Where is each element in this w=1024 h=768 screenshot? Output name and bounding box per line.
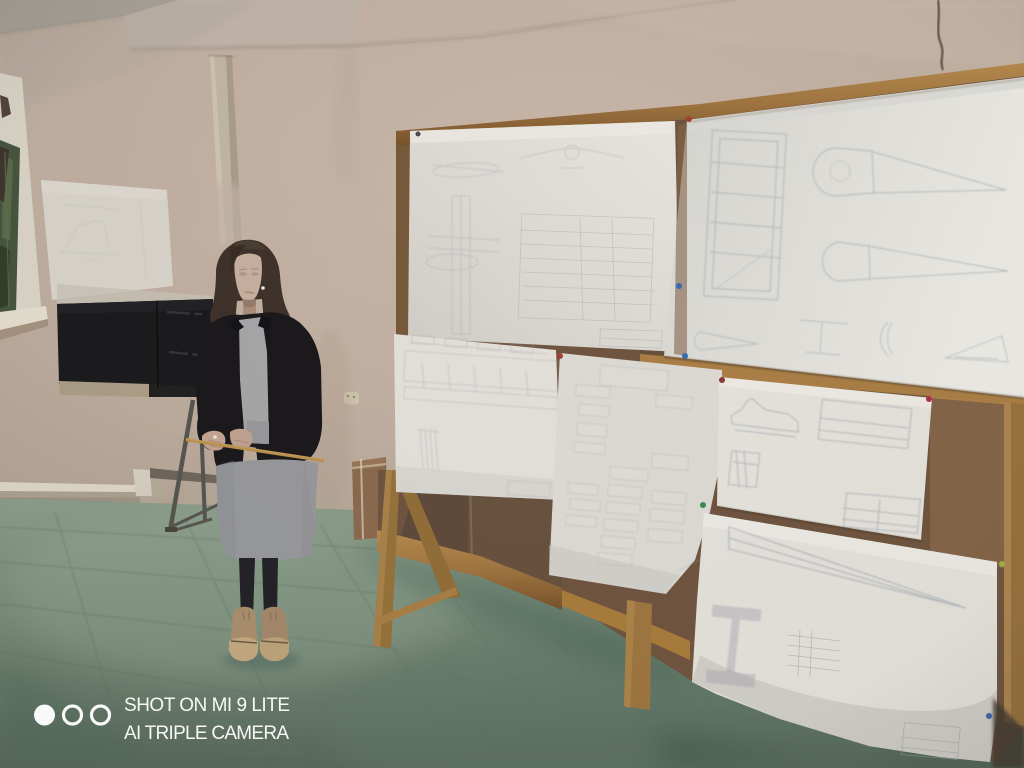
svg-text:SHOT ON MI 9 LITE: SHOT ON MI 9 LITE [124,695,290,716]
svg-text:AI TRIPLE CAMERA: AI TRIPLE CAMERA [124,723,289,744]
